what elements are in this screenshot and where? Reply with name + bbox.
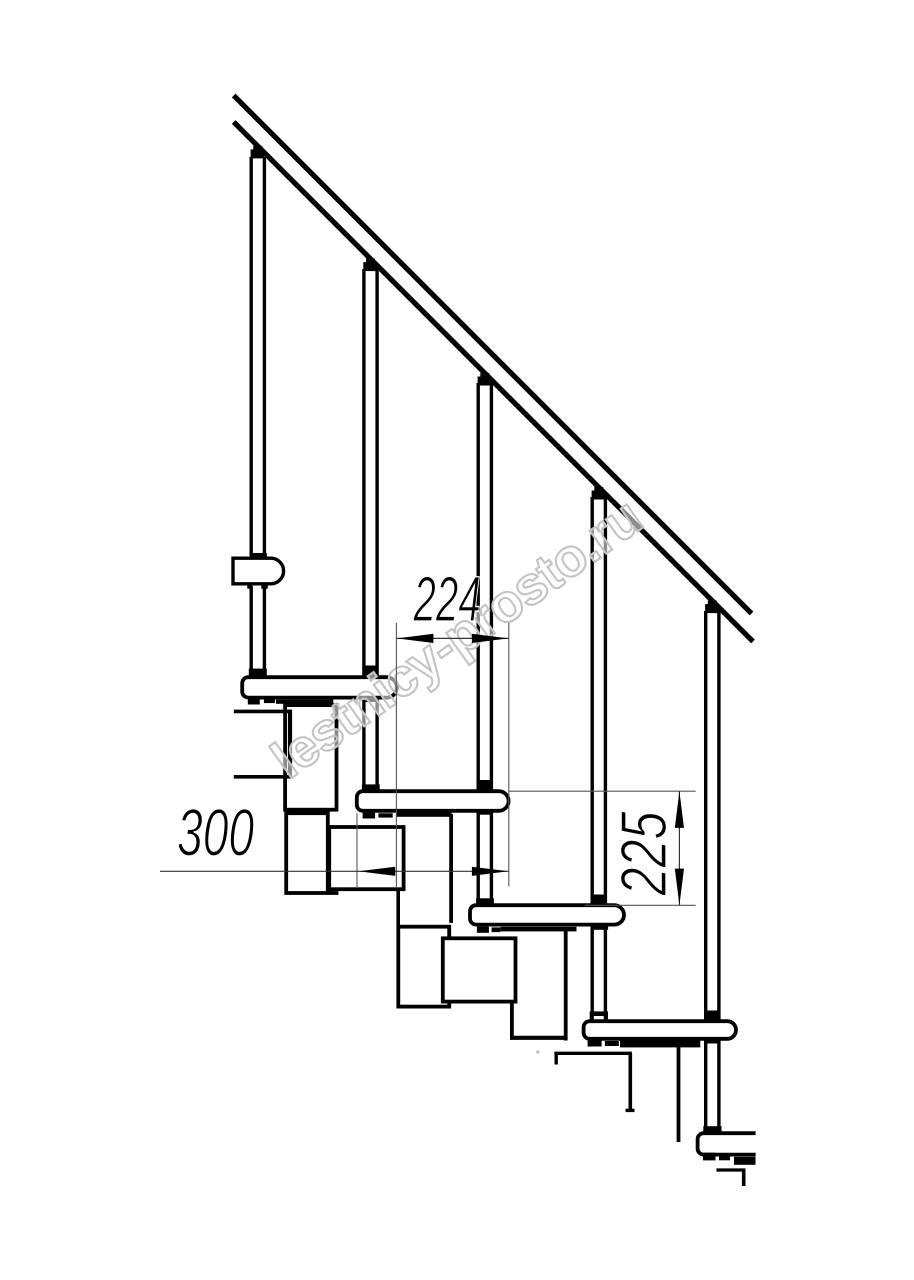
svg-text:300: 300 xyxy=(177,796,254,870)
svg-text:224: 224 xyxy=(413,565,481,636)
svg-text:225: 225 xyxy=(608,811,681,896)
